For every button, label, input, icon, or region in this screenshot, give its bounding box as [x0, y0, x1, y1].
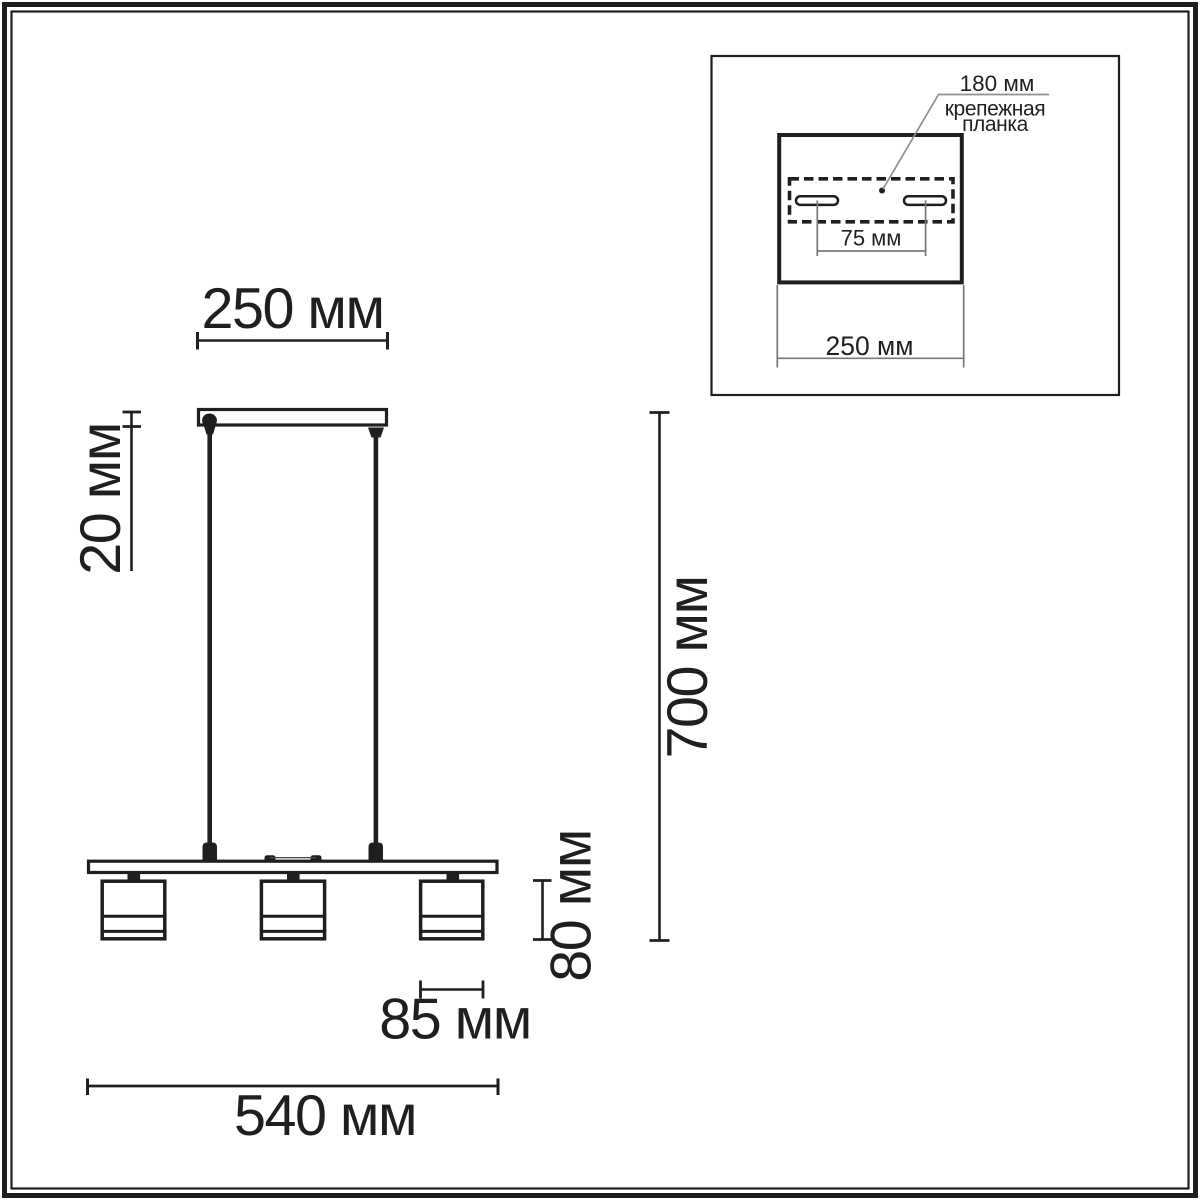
svg-text:180 мм: 180 мм [960, 71, 1035, 96]
svg-text:20 мм: 20 мм [69, 423, 133, 575]
svg-text:250 мм: 250 мм [825, 331, 913, 361]
svg-text:700 мм: 700 мм [656, 577, 720, 759]
svg-text:планка: планка [962, 113, 1029, 136]
svg-text:540 мм: 540 мм [234, 1084, 416, 1148]
svg-text:80 мм: 80 мм [540, 830, 604, 982]
svg-text:75 мм: 75 мм [841, 226, 902, 251]
svg-text:250 мм: 250 мм [202, 277, 384, 341]
svg-text:85 мм: 85 мм [379, 988, 531, 1052]
